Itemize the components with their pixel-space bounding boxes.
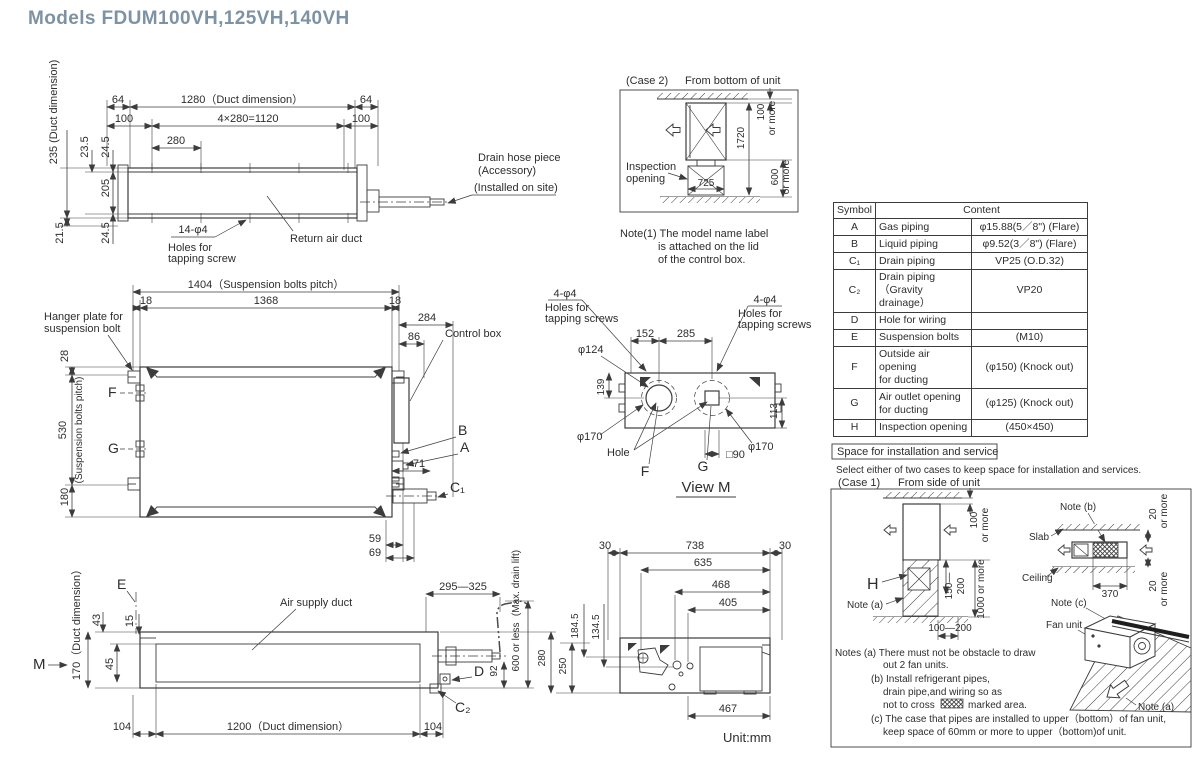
dim-100-more-case1: or more: [980, 507, 991, 542]
viewm-holes-left-dim: 4-φ4: [553, 288, 576, 300]
viewm-g-label: G: [698, 458, 709, 474]
notes-a1: Notes (a) There must not be obstacle to …: [835, 648, 1036, 659]
dim-285: 285: [677, 328, 695, 340]
item-cell: Drain piping: [876, 253, 972, 270]
dim-530-note: (Suspension bolts pitch): [74, 377, 85, 484]
symbol-cell: C₁: [834, 253, 876, 270]
notes-c1: (c) The case that pipes are installed to…: [871, 713, 1166, 725]
drawing-page: Models FDUM100VH,125VH,140VH: [0, 0, 1200, 761]
notes-b3-post: marked area.: [968, 700, 1027, 711]
dim-phi124: φ124: [578, 344, 604, 356]
dim-1200: 1200（Duct dimension）: [227, 720, 349, 733]
dim-184-5: 184.5: [570, 613, 581, 638]
item-cell: Outside air opening for ducting: [876, 346, 972, 388]
case2-caption: From bottom of unit: [685, 75, 780, 87]
value-cell: VP20: [972, 270, 1088, 312]
item-line1: Air outlet opening: [879, 391, 968, 404]
symbol-cell: E: [834, 329, 876, 346]
viewm-f-label: F: [641, 463, 650, 479]
hanger-plates: [128, 371, 404, 490]
note-a2-label: Note (a): [1138, 702, 1174, 713]
dim-405: 405: [719, 597, 737, 609]
dim-1280: 1280（Duct dimension）: [181, 93, 303, 106]
dim-20-bot: 20: [1148, 580, 1159, 592]
top-view: 64 1280（Duct dimension） 64 100 4×280=112…: [48, 60, 561, 265]
table-row: B Liquid piping φ9.52(3／8") (Flare): [834, 236, 1088, 253]
dim-205: 205: [100, 179, 112, 197]
dim-295-325: 295—325: [439, 581, 487, 593]
dim-100-left: 100: [115, 113, 133, 125]
symbol-cell: G: [834, 388, 876, 419]
c1-label: C₁: [450, 479, 465, 495]
dim-71: 71: [413, 458, 425, 470]
dim-250: 250: [558, 657, 569, 674]
dim-24-5-top: 24.5: [100, 136, 112, 157]
dim-113: 113: [769, 403, 780, 419]
drain-hose-label-3: (Installed on site): [474, 182, 558, 194]
dim-100-case1: 100: [969, 511, 980, 528]
item-cell: Inspection opening: [876, 419, 972, 436]
dim-64-right: 64: [360, 94, 372, 106]
hole-label: Hole: [607, 447, 630, 459]
note1-line3: of the control box.: [658, 254, 745, 266]
dim-holes-14: 14-φ4: [178, 224, 207, 236]
inspection-opening-2: opening: [626, 173, 665, 185]
dim-phi170-left: φ170: [577, 431, 603, 443]
m-label: M: [33, 656, 46, 673]
dim-1720: 1720: [736, 126, 747, 149]
hanger-label-1: Hanger plate for: [44, 311, 123, 323]
case1-label: (Case 1): [838, 477, 880, 489]
dim-104-left: 104: [113, 721, 131, 733]
dim-64-left: 64: [112, 94, 124, 106]
dim-100: 100: [756, 103, 767, 120]
dim-20-top-more: or more: [1159, 493, 1170, 528]
dim-467: 467: [719, 703, 737, 715]
dim-150-line2: 200: [956, 577, 967, 594]
bottom-view: E M 170（Duct dimension） 43 15 45 Air sup…: [33, 550, 622, 738]
dim-59: 59: [369, 533, 381, 545]
value-cell: (φ150) (Knock out): [972, 346, 1088, 388]
control-box-label: Control box: [445, 328, 502, 340]
table-row: D Hole for wiring: [834, 312, 1088, 329]
view-m: 4-φ4 Holes for tapping screws 4-φ4 Holes…: [545, 288, 812, 497]
value-cell: [972, 312, 1088, 329]
dim-1368: 1368: [254, 295, 278, 307]
dim-24-5-bot: 24.5: [100, 222, 112, 243]
drain-hose-label-2: (Accessory): [478, 165, 536, 177]
g-label: G: [108, 440, 119, 456]
symbol-header: Symbol: [834, 203, 876, 219]
item-line1: Outside air opening: [879, 348, 968, 374]
hatch-swatch: [941, 699, 963, 708]
dim-600-or-less: 600 or less: [511, 623, 522, 672]
dim-20-bot-more: or more: [1159, 571, 1170, 606]
table-row: F Outside air opening for ducting (φ150)…: [834, 346, 1088, 388]
dim-235: 235 (Duct dimension): [48, 60, 60, 165]
a-label: A: [460, 439, 470, 455]
dim-180: 180: [59, 488, 71, 506]
value-cell: (M10): [972, 329, 1088, 346]
dim-134-5: 134.5: [591, 614, 602, 639]
case2-label: (Case 2): [626, 75, 668, 87]
notes-b2: drain pipe,and wiring so as: [883, 687, 1002, 698]
dim-100-more: or more: [767, 100, 778, 135]
dim-280: 280: [537, 649, 548, 666]
dim-1000-more: 1000 or more: [976, 559, 987, 619]
dim-86: 86: [408, 331, 420, 343]
holes-label-2: tapping screw: [168, 253, 236, 265]
plan-view: 1404（Suspension bolts pitch） 18 1368 18 …: [44, 278, 502, 562]
item-cell: Liquid piping: [876, 236, 972, 253]
value-cell: φ9.52(3／8") (Flare): [972, 236, 1088, 253]
dim-69: 69: [369, 547, 381, 559]
dim-280: 280: [167, 135, 185, 147]
hanger-label-2: suspension bolt: [44, 323, 120, 335]
note-b-label: Note (b): [1060, 502, 1096, 513]
symbol-cell: D: [834, 312, 876, 329]
table-row: G Air outlet opening for ducting (φ125) …: [834, 388, 1088, 419]
item-cell: Gas piping: [876, 219, 972, 236]
viewm-holes-left-2: tapping screws: [545, 313, 619, 325]
airflow-arrow-left: [666, 124, 680, 136]
c2-label: C₂: [455, 699, 471, 715]
ceiling-label: Ceiling: [1022, 573, 1053, 584]
notes-a2: out 2 fan units.: [883, 660, 949, 671]
dim-104-right: 104: [424, 721, 442, 733]
notes-b3-pre: not to cross: [883, 700, 935, 711]
note-a-label: Note (a): [847, 600, 883, 611]
unit-mm-label: Unit:mm: [723, 730, 771, 745]
dim-92: 92: [489, 665, 500, 677]
air-supply-duct-label: Air supply duct: [280, 597, 352, 609]
table-row: H Inspection opening (450×450): [834, 419, 1088, 436]
dim-600-more: or more: [781, 159, 792, 194]
slab-arrow-right: [1140, 545, 1152, 555]
dim-600: 600: [770, 168, 781, 185]
case2-diagram: (Case 2) From bottom of unit Inspection …: [620, 75, 798, 266]
max-drain-lift: (Max. drain lift): [511, 550, 522, 616]
dim-30-left: 30: [599, 540, 611, 552]
side-view: 30 738 30 635 468 405 184.5 134.5: [570, 540, 791, 745]
content-header: Content: [876, 203, 1088, 219]
item-cell: Suspension bolts: [876, 329, 972, 346]
dim-45: 45: [104, 658, 116, 670]
dim-15: 15: [124, 615, 136, 627]
note1-line1: Note(1) The model name label: [620, 228, 768, 240]
dim-20-top: 20: [1148, 508, 1159, 520]
symbol-cell: F: [834, 346, 876, 388]
notes-b1: (b) Install refrigerant pipes,: [871, 674, 990, 685]
symbol-cell: C₂: [834, 270, 876, 312]
symbol-cell: B: [834, 236, 876, 253]
notes-c2: keep space of 60mm or more to upper（bott…: [883, 726, 1126, 738]
note1-line2: is attached on the lid: [658, 241, 759, 253]
item-cell: Drain piping （Gravity drainage）: [876, 270, 972, 312]
slab-arrow-left: [1058, 545, 1070, 555]
item-line2: （Gravity drainage）: [879, 284, 968, 310]
dim-23-5: 23.5: [79, 136, 91, 157]
value-cell: φ15.88(5／8") (Flare): [972, 219, 1088, 236]
item-line2: for ducting: [879, 404, 968, 417]
return-air-duct-label: Return air duct: [290, 233, 362, 245]
item-line2: for ducting: [879, 374, 968, 387]
symbol-table: Symbol Content A Gas piping φ15.88(5／8")…: [833, 202, 1088, 437]
dim-530: 530: [57, 421, 69, 439]
value-cell: (φ125) (Knock out): [972, 388, 1088, 419]
install-section: Space for installation and service Selec…: [831, 444, 1191, 747]
e-label: E: [117, 576, 126, 592]
case1-arrow-right: [944, 525, 956, 535]
dim-1404: 1404（Suspension bolts pitch）: [188, 278, 345, 291]
value-cell: VP25 (O.D.32): [972, 253, 1088, 270]
item-line1: Drain piping: [879, 271, 968, 284]
value-cell: (450×450): [972, 419, 1088, 436]
table-row: C₂ Drain piping （Gravity drainage） VP20: [834, 270, 1088, 312]
dim-152: 152: [636, 328, 654, 340]
dim-150-line1: 150—: [944, 573, 955, 600]
table-row: E Suspension bolts (M10): [834, 329, 1088, 346]
item-cell: Hole for wiring: [876, 312, 972, 329]
dim-1120: 4×280=1120: [218, 113, 279, 125]
b-label: B: [458, 422, 467, 438]
case1-caption: From side of unit: [898, 477, 980, 489]
slab-label: Slab: [1029, 532, 1049, 543]
viewm-holes-right-dim: 4-φ4: [753, 294, 776, 306]
dim-738: 738: [686, 540, 704, 552]
d-label: D: [474, 663, 484, 679]
case1-arrow-left: [884, 525, 896, 535]
dim-468: 468: [712, 579, 730, 591]
dim-18-right: 18: [389, 295, 401, 307]
dim-18-left: 18: [140, 295, 152, 307]
symbol-cell: H: [834, 419, 876, 436]
dim-100-right: 100: [352, 113, 370, 125]
view-m-title: View M: [682, 479, 731, 496]
h-label: H: [867, 576, 879, 593]
item-cell: Air outlet opening for ducting: [876, 388, 972, 419]
inspection-opening-1: Inspection: [626, 161, 676, 173]
table-row: A Gas piping φ15.88(5／8") (Flare): [834, 219, 1088, 236]
dim-170-duct: 170（Duct dimension）: [70, 564, 83, 680]
dim-100-200: 100—200: [928, 623, 972, 634]
dim-635: 635: [694, 557, 712, 569]
dim-284: 284: [418, 312, 436, 324]
symbol-cell: A: [834, 219, 876, 236]
install-intro: Select either of two cases to keep space…: [836, 465, 1141, 476]
dim-21-5: 21.5: [54, 222, 66, 243]
dim-370: 370: [1102, 589, 1119, 600]
dim-sq90: □90: [726, 449, 745, 461]
install-title: Space for installation and service: [837, 446, 998, 458]
viewm-holes-right-2: tapping screws: [738, 319, 812, 331]
dim-43: 43: [91, 614, 103, 626]
fan-unit-label: Fan unit: [1046, 620, 1082, 631]
note-c-label: Note (c): [1051, 598, 1087, 609]
table-row: C₁ Drain piping VP25 (O.D.32): [834, 253, 1088, 270]
dim-28: 28: [59, 350, 71, 362]
f-label: F: [108, 384, 117, 400]
drain-hose-label-1: Drain hose piece: [478, 152, 561, 164]
dim-139: 139: [596, 378, 607, 395]
dim-725: 725: [698, 178, 715, 189]
dim-30-right: 30: [779, 540, 791, 552]
